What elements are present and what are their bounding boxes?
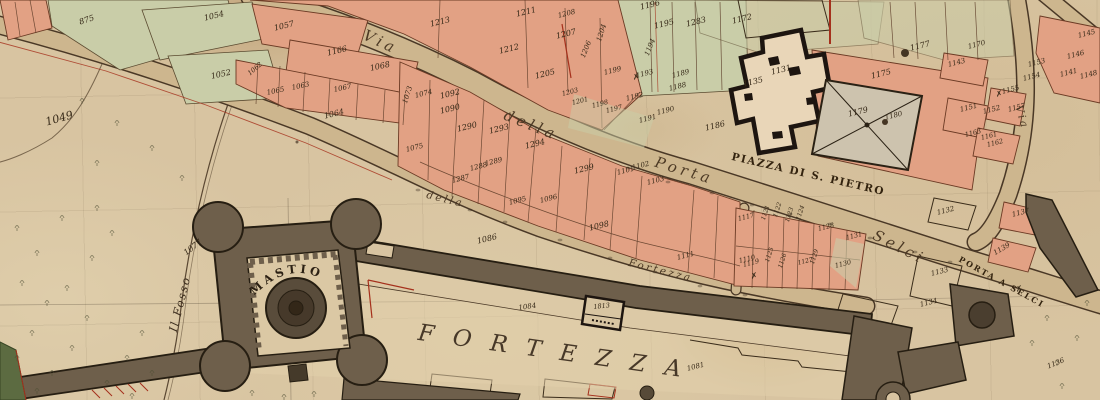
bastion-ne: [331, 199, 381, 249]
dot-1177: [901, 49, 909, 57]
field-dot: [296, 141, 299, 144]
mastio-gate: [288, 364, 308, 382]
dot-1180: [882, 119, 888, 125]
wall-foot: [898, 342, 966, 394]
map-canvas: MASTIO: [0, 0, 1100, 400]
vegetation-patch: [0, 342, 26, 400]
mastio-tower-core: [289, 301, 303, 315]
fortress-mastio: [193, 199, 387, 391]
bastion-nw: [193, 202, 243, 252]
bastion-sw: [200, 341, 250, 391]
bottom-wall-left: [0, 348, 220, 400]
historical-city-map: MASTIO ViadellaPortaSelcidellaFortezzaVi…: [0, 0, 1100, 400]
wall-building-1813: [582, 296, 624, 330]
roofed-building: [812, 80, 922, 170]
well-blob: [640, 386, 654, 400]
